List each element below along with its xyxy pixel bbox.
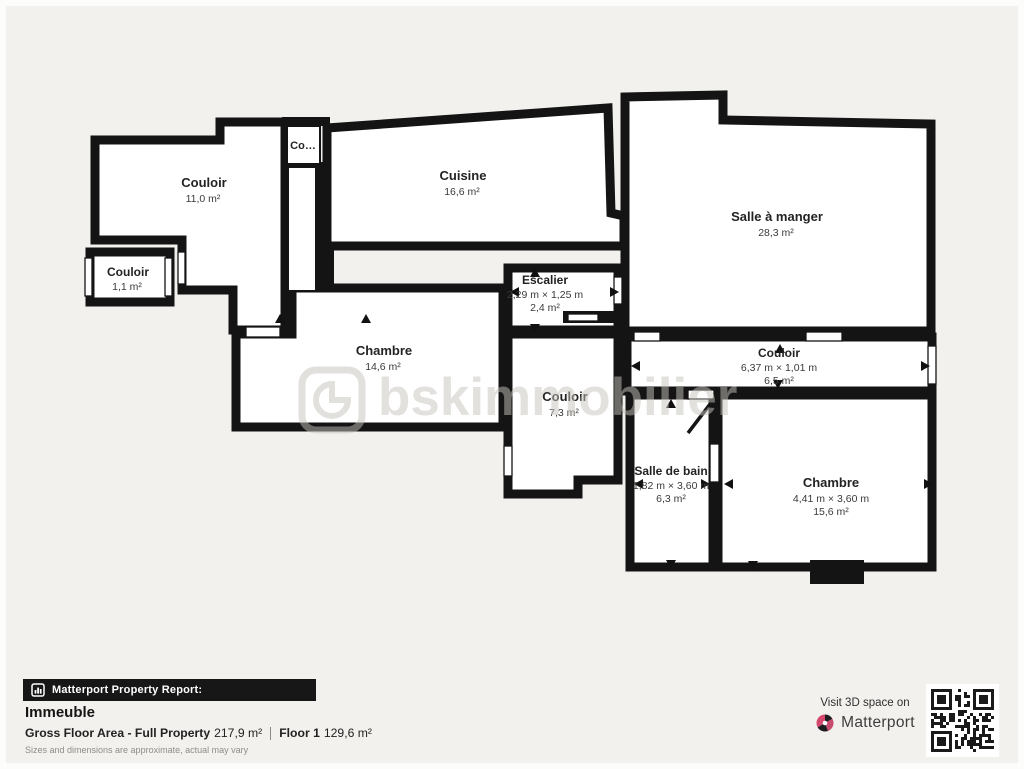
label-chambre-left: Chambre	[356, 343, 412, 358]
label-cuisine: Cuisine	[440, 168, 487, 183]
label-couloir-small: Couloir	[107, 265, 149, 279]
label-closet: Co…	[290, 140, 316, 152]
matterport-link[interactable]: Matterport	[805, 713, 925, 733]
label-salle-a-manger: Salle à manger	[731, 209, 823, 224]
qr-code	[926, 684, 999, 757]
label-salle-de-bain: Salle de bain	[634, 464, 707, 478]
label-chambre-right: Chambre	[803, 475, 859, 490]
shaft-channel	[289, 168, 315, 290]
floor-value: 129,6 m²	[324, 726, 372, 740]
gfa-label: Gross Floor Area - Full Property	[25, 726, 210, 740]
wall-cuisine-chambre-connector	[322, 250, 334, 290]
area-salle-de-bain: 6,3 m²	[656, 493, 686, 505]
floor-plan-page: Couloir 11,0 m² Couloir 1,1 m² Co… Cuisi…	[0, 0, 1024, 769]
gfa-value: 217,9 m²	[214, 726, 262, 740]
window-couloir-small-left	[85, 258, 92, 296]
opening-couloir-chambre	[246, 327, 280, 337]
watermark-text: bskimmobilier	[378, 368, 737, 427]
opening-sdb-chambre	[710, 444, 719, 482]
visit-3d-label: Visit 3D space on	[805, 697, 925, 709]
report-bar-label: Matterport Property Report:	[52, 684, 202, 696]
dims-couloir-long: 6,37 m × 1,01 m	[741, 362, 817, 374]
area-salle-a-manger: 28,3 m²	[758, 227, 794, 239]
divider	[270, 727, 271, 740]
property-name: Immeuble	[25, 704, 95, 721]
floor-plan-drawing: Couloir 11,0 m² Couloir 1,1 m² Co… Cuisi…	[0, 0, 1024, 769]
floor-label: Floor 1	[279, 726, 320, 740]
window-couloir-small-right	[165, 258, 172, 296]
dims-salle-de-bain: 1,82 m × 3,60 m	[633, 480, 709, 492]
area-chambre-right: 15,6 m²	[813, 506, 849, 518]
area-couloir-small: 1,1 m²	[112, 281, 142, 293]
label-couloir-long: Couloir	[758, 346, 800, 360]
window-couloir-long-right	[928, 346, 936, 384]
wall-top-edge-closet	[282, 117, 330, 126]
dims-escalier: 2,29 m × 1,25 m	[507, 289, 583, 301]
window-couloir-main-left	[178, 252, 185, 284]
disclaimer-text: Sizes and dimensions are approximate, ac…	[25, 745, 248, 755]
area-couloir-main: 11,0 m²	[186, 193, 221, 205]
label-couloir-main: Couloir	[181, 175, 227, 190]
dims-chambre-right: 4,41 m × 3,60 m	[793, 493, 869, 505]
area-escalier: 2,4 m²	[530, 302, 560, 314]
wall-bottom-notch	[810, 560, 864, 584]
area-couloir-long: 6,5 m²	[764, 375, 794, 387]
window-couloir-long-top-b	[806, 332, 842, 341]
window-couloir-mid-left	[504, 446, 512, 476]
report-bar: Matterport Property Report:	[23, 679, 316, 701]
window-couloir-long-top-a	[634, 332, 660, 341]
floor-area-line: Gross Floor Area - Full Property 217,9 m…	[25, 726, 372, 740]
report-icon	[31, 683, 45, 697]
matterport-logo-icon	[815, 713, 835, 733]
window-escalier-landing	[568, 314, 598, 321]
matterport-wordmark: Matterport	[841, 714, 915, 732]
label-escalier: Escalier	[522, 273, 568, 287]
area-cuisine: 16,6 m²	[444, 186, 480, 198]
